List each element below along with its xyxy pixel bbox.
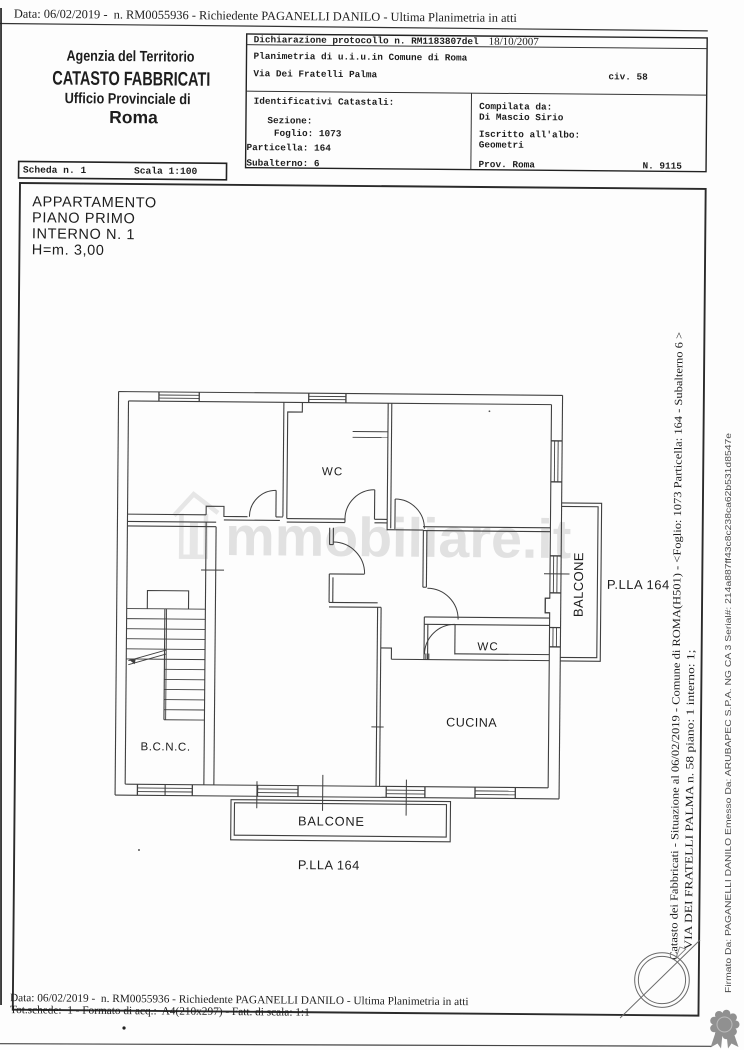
- svg-text:P.LLA 164: P.LLA 164: [298, 857, 360, 873]
- svg-text:H=m. 3,00: H=m. 3,00: [32, 242, 105, 259]
- svg-text:civ. 58: civ. 58: [608, 71, 648, 82]
- svg-text:Data: 06/02/2019 - n. RM00559: Data: 06/02/2019 - n. RM0055936 - Richie…: [14, 7, 518, 25]
- svg-text:CATASTO FABBRICATI: CATASTO FABBRICATI: [52, 67, 210, 90]
- svg-text:Identificativi Catastali:: Identificativi Catastali:: [254, 96, 395, 108]
- svg-text:Scheda n. 1: Scheda n. 1: [23, 165, 87, 177]
- svg-text:Sezione:: Sezione:: [267, 115, 312, 126]
- svg-text:Tot.schede: 1 - Formato di ac: Tot.schede: 1 - Formato di acq.: A4(210x…: [10, 1004, 310, 1019]
- svg-text:BALCONE: BALCONE: [571, 552, 587, 617]
- svg-text:Particella: 164: Particella: 164: [246, 142, 331, 154]
- svg-text:B.C.N.C.: B.C.N.C.: [140, 741, 190, 753]
- svg-text:Di Mascio Sirio: Di Mascio Sirio: [479, 112, 564, 124]
- svg-text:PIANO PRIMO: PIANO PRIMO: [32, 210, 135, 227]
- svg-text:mmobiliare.it: mmobiliare.it: [225, 505, 572, 570]
- svg-text:VIA DEI FRATELLI PALMA n. 58 p: VIA DEI FRATELLI PALMA n. 58 piano: 1 in…: [683, 650, 698, 950]
- svg-text:Ufficio Provinciale di: Ufficio Provinciale di: [65, 90, 191, 108]
- svg-text:Geometri: Geometri: [479, 139, 524, 150]
- svg-text:Via Dei Fratelli Palma: Via Dei Fratelli Palma: [253, 68, 377, 80]
- svg-text:Scala 1:100: Scala 1:100: [134, 165, 198, 177]
- svg-text:Planimetria di u.i.u.in Comune: Planimetria di u.i.u.in Comune di Roma: [253, 51, 467, 64]
- svg-text:WC: WC: [322, 466, 344, 478]
- svg-text:Subalterno: 6: Subalterno: 6: [246, 158, 320, 170]
- svg-text:P.LLA 164: P.LLA 164: [607, 577, 670, 593]
- svg-text:WC: WC: [477, 641, 499, 653]
- svg-text:CUCINA: CUCINA: [446, 715, 497, 729]
- svg-text:INTERNO N. 1: INTERNO N. 1: [32, 226, 135, 243]
- svg-text:Firmato Da: PAGANELLI DANILO E: Firmato Da: PAGANELLI DANILO Emesso Da: …: [723, 433, 733, 993]
- svg-text:Agenzia del Territorio: Agenzia del Territorio: [66, 48, 194, 66]
- svg-text:Foglio: 1073: Foglio: 1073: [274, 128, 342, 140]
- svg-text:APPARTAMENTO: APPARTAMENTO: [32, 194, 157, 211]
- svg-text:Prov. Roma: Prov. Roma: [479, 159, 536, 170]
- svg-text:Roma: Roma: [109, 107, 158, 127]
- svg-text:BALCONE: BALCONE: [298, 813, 365, 829]
- svg-text:N. 9115: N. 9115: [643, 160, 683, 171]
